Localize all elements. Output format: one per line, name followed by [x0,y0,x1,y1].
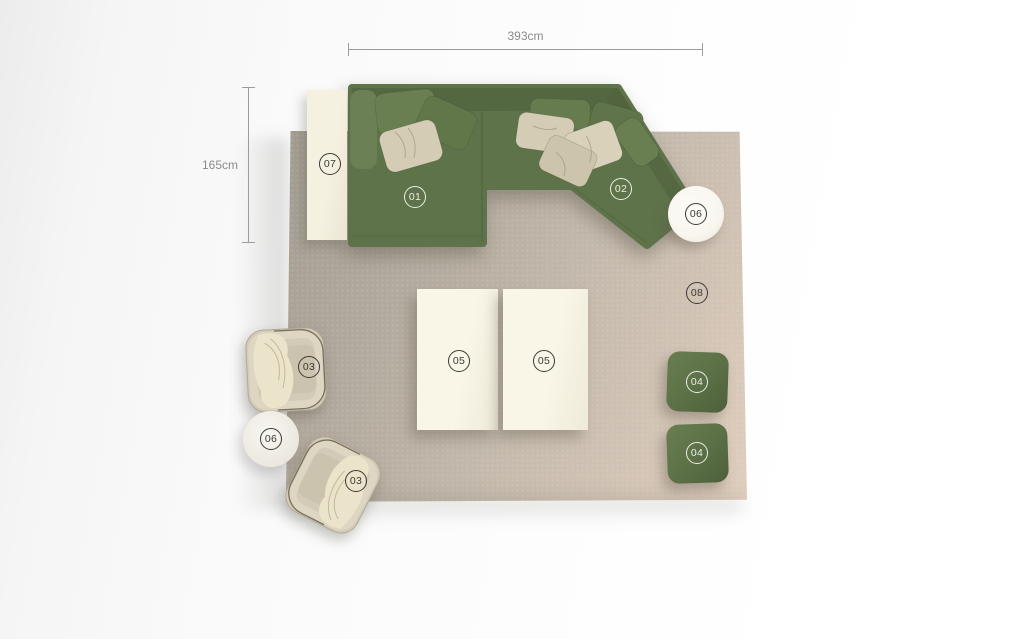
marker-sofa-section-left[interactable]: 01 [404,186,426,208]
dimension-height-tick-top [242,87,255,88]
marker-pouf-upper[interactable]: 04 [686,371,708,393]
dimension-width-label: 393cm [507,29,543,43]
dimension-height-label: 165cm [202,158,238,172]
marker-console[interactable]: 07 [319,153,341,175]
dimension-width-line [348,49,703,50]
marker-sofa-section-right[interactable]: 02 [610,178,632,200]
marker-side-table-lower[interactable]: 06 [260,428,282,450]
marker-coffee-table-left[interactable]: 05 [448,350,470,372]
marker-coffee-table-right[interactable]: 05 [533,350,555,372]
marker-side-table-upper[interactable]: 06 [685,203,707,225]
dimension-width-tick-right [702,43,703,56]
marker-rug[interactable]: 08 [686,282,708,304]
marker-armchair-upper[interactable]: 03 [298,356,320,378]
marker-armchair-lower[interactable]: 03 [345,470,367,492]
floor-plan: 01 02 03 03 04 04 05 05 06 06 07 08 393c… [0,0,1024,639]
dimension-height-line [248,87,249,243]
dimension-width-tick-left [348,43,349,56]
dimension-height-tick-bottom [242,242,255,243]
marker-pouf-lower[interactable]: 04 [686,442,708,464]
